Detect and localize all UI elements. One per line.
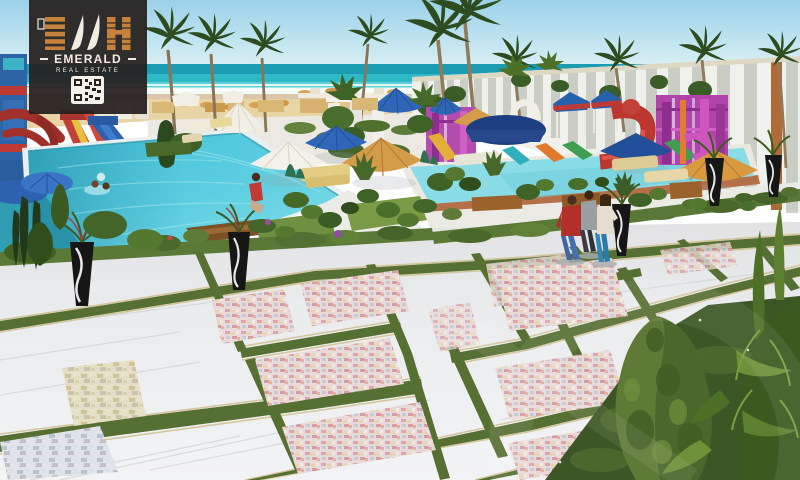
svg-text:EMERALD: EMERALD bbox=[54, 52, 122, 66]
svg-text:REAL ESTATE: REAL ESTATE bbox=[56, 67, 120, 74]
